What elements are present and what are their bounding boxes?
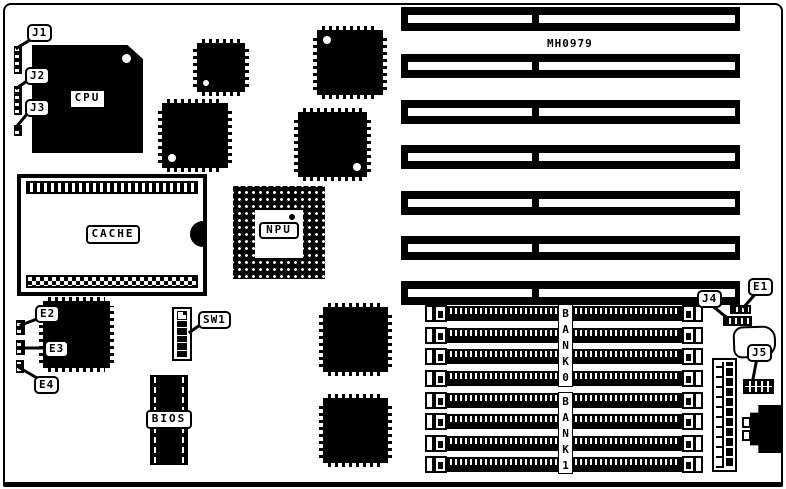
label-e4: E4 [34,376,59,394]
cpu-label: CPU [71,91,104,107]
isa-slot [401,145,740,169]
connector-tab [742,417,751,428]
jumper-j1 [14,46,22,74]
isa-slot [401,236,740,260]
jumper-j4 [723,316,752,326]
ic-chip [162,103,228,168]
label-e3: E3 [44,340,69,358]
jumper-j3 [14,125,22,136]
jumper-e2 [16,320,25,335]
jumper-e4 [16,360,24,373]
cache-notch [190,221,203,247]
label-e2: E2 [35,305,60,323]
isa-slot [401,281,740,305]
power-connector [712,358,737,472]
npu-label: NPU [259,222,299,239]
isa-slot [401,191,740,215]
label-sw1: SW1 [198,311,231,329]
bios-label: BIOS [146,410,192,429]
npu-pin1-dot [289,214,295,220]
label-j4: J4 [697,290,722,308]
label-j5: J5 [747,344,772,362]
board-id-label: MH0979 [545,37,595,50]
cache-label: CACHE [86,225,140,244]
jumper-e1 [730,305,751,314]
ic-chip [317,30,383,95]
ic-chip [323,307,388,372]
isa-slot [401,7,740,31]
label-j2: J2 [25,67,50,85]
ic-chip [197,43,245,92]
bank0-label: BANK0 [558,304,573,387]
ic-chip [323,398,388,463]
cache-pin-row-bottom [26,275,198,288]
label-e1: E1 [748,278,773,296]
isa-slot [401,100,740,124]
isa-slot [401,54,740,78]
cache-pin-row-top [26,181,198,194]
label-j3: J3 [25,99,50,117]
jumper-j2 [14,86,22,115]
connector-tab [742,430,751,441]
label-j1: J1 [27,24,52,42]
motherboard-diagram: J1 J2 J3 CPU CACHE NPU E2 E3 E4 SW1 BIOS [0,0,786,489]
cpu-pin1-dot [122,54,131,63]
bank1-label: BANK1 [558,392,573,474]
j5-pin-header [743,379,774,394]
jumper-e3 [16,340,25,355]
sw1-dip-switch [172,307,192,361]
ic-chip [298,112,367,177]
